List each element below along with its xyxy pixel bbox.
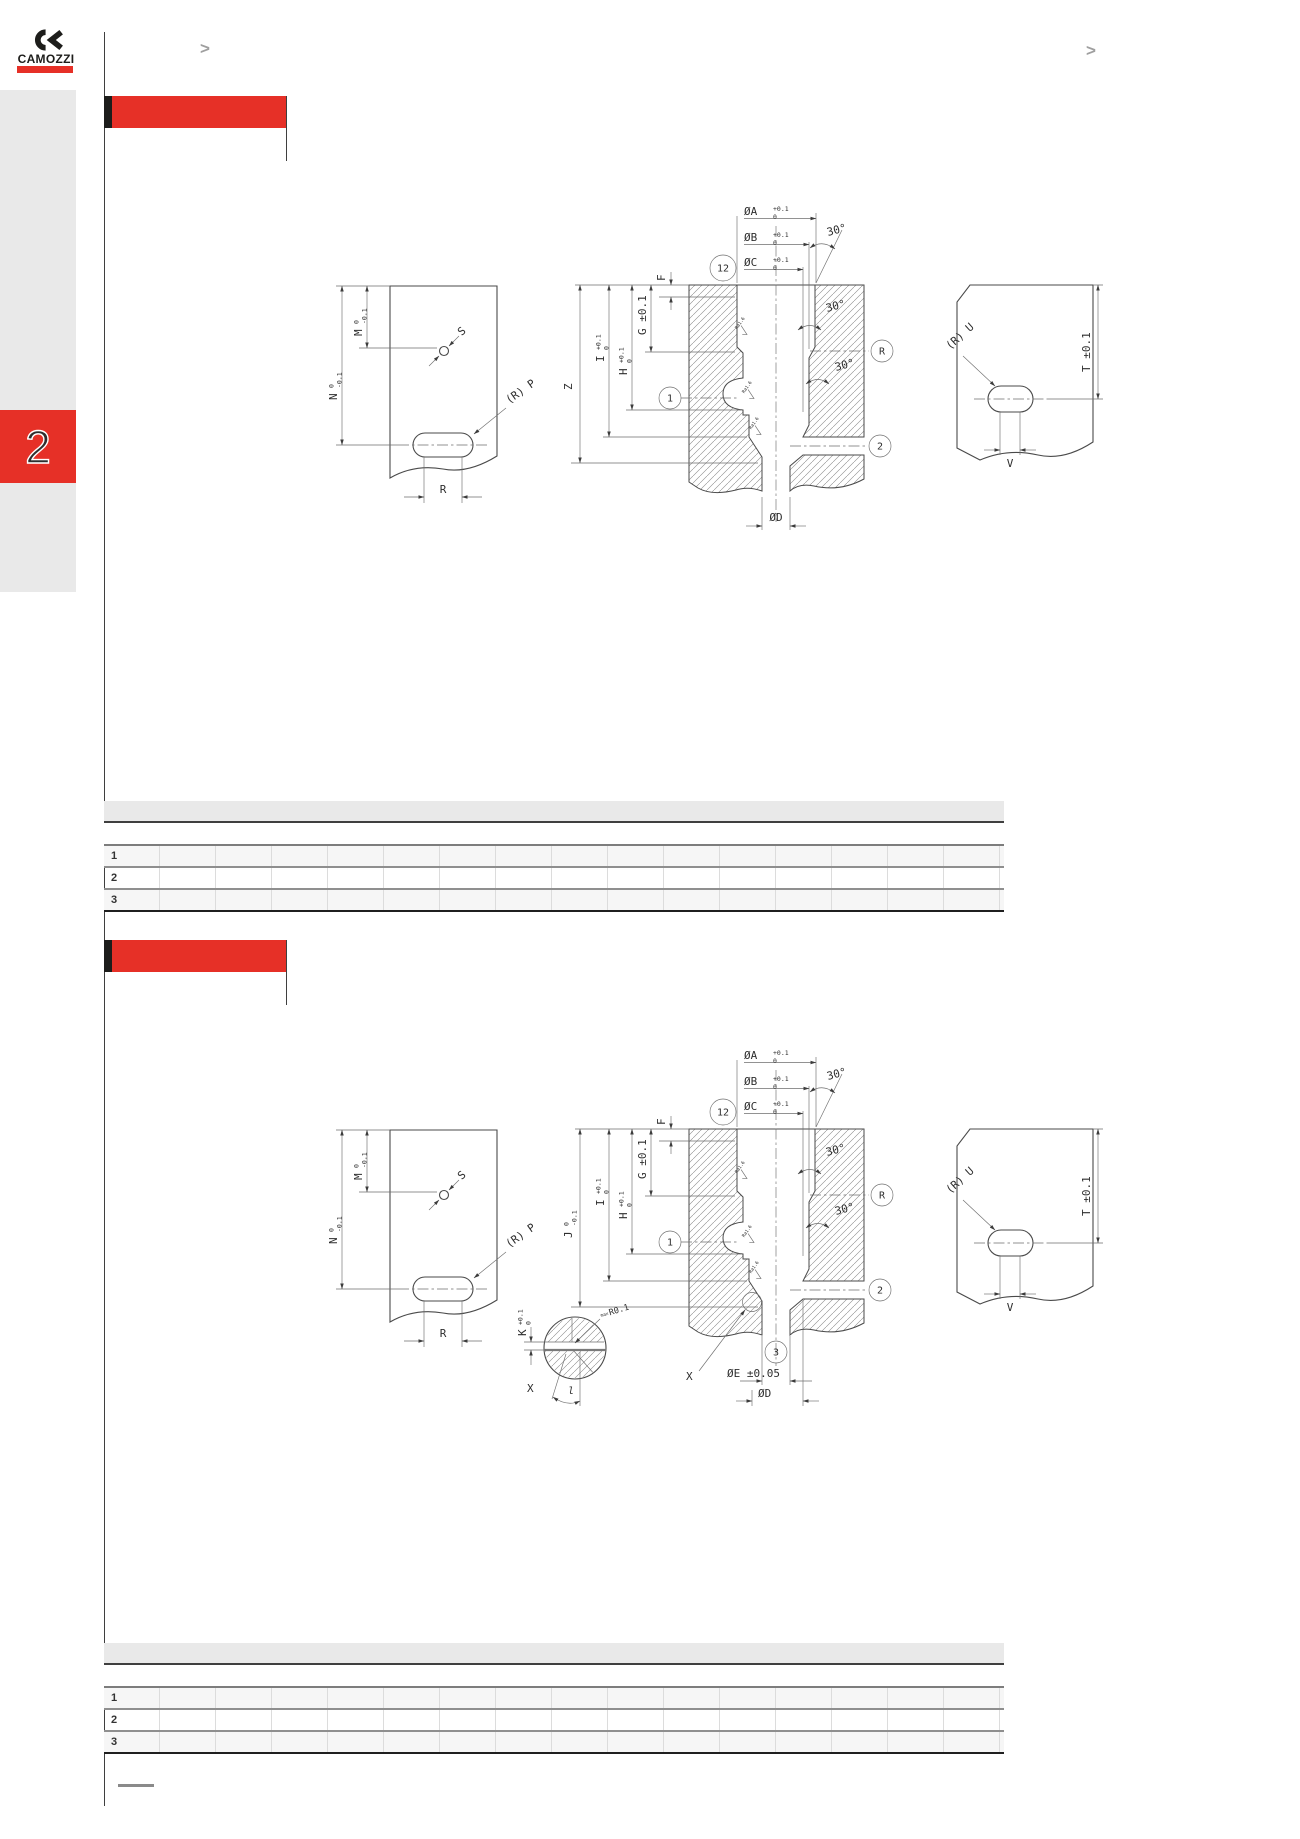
dimension-table-2: 1 2 3 — [104, 1643, 1004, 1754]
label-dia-d: ØD — [758, 1387, 771, 1400]
drawing-1-extras: Z ØD — [562, 383, 806, 530]
label-k: K +0.1 0 — [513, 1303, 533, 1336]
table-row: 3 — [104, 1732, 1004, 1754]
table2-subheader-row — [104, 1665, 1004, 1688]
label-angle-l: l — [568, 1386, 574, 1397]
table-row: 1 — [104, 1688, 1004, 1710]
row-number: 3 — [104, 894, 117, 906]
table-row: 3 — [104, 890, 1004, 912]
table1-header-band — [104, 801, 1004, 823]
technical-drawings: S M 0 -0.1 N 0 -0.1 — [0, 0, 1300, 1839]
drawing-1 — [324, 205, 1104, 522]
catalog-page: CAMOZZI > > 2 — [0, 0, 1300, 1839]
table-row: 2 — [104, 1710, 1004, 1732]
svg-text:3: 3 — [773, 1348, 779, 1359]
label-max-r: max R0.1 — [597, 1294, 631, 1321]
label-x-ref: X — [686, 1370, 693, 1383]
row-number: 2 — [104, 1714, 117, 1726]
dimension-table-1: 1 2 3 — [104, 801, 1004, 912]
row-number: 1 — [104, 1692, 117, 1704]
table-row: 2 — [104, 868, 1004, 890]
label-z: Z — [562, 383, 575, 390]
row-number: 1 — [104, 850, 117, 862]
footer-page-rule — [118, 1784, 154, 1787]
table2-header-band — [104, 1643, 1004, 1665]
label-x-detail: X — [527, 1382, 534, 1395]
table1-subheader-row — [104, 823, 1004, 846]
detail-view-x: K +0.1 0 max R0.1 l X — [513, 1294, 631, 1406]
drawing-2-extras: J 0 -0.1 3 ØE ±0.05 ØD X — [513, 1210, 820, 1406]
row-number: 2 — [104, 872, 117, 884]
label-dia-d: ØD — [769, 511, 782, 524]
row-number: 3 — [104, 1736, 117, 1748]
table-row: 1 — [104, 846, 1004, 868]
label-dia-e: ØE ±0.05 — [727, 1367, 780, 1380]
drawing-2 — [324, 1049, 1104, 1366]
label-j: J 0 -0.1 — [559, 1210, 579, 1238]
